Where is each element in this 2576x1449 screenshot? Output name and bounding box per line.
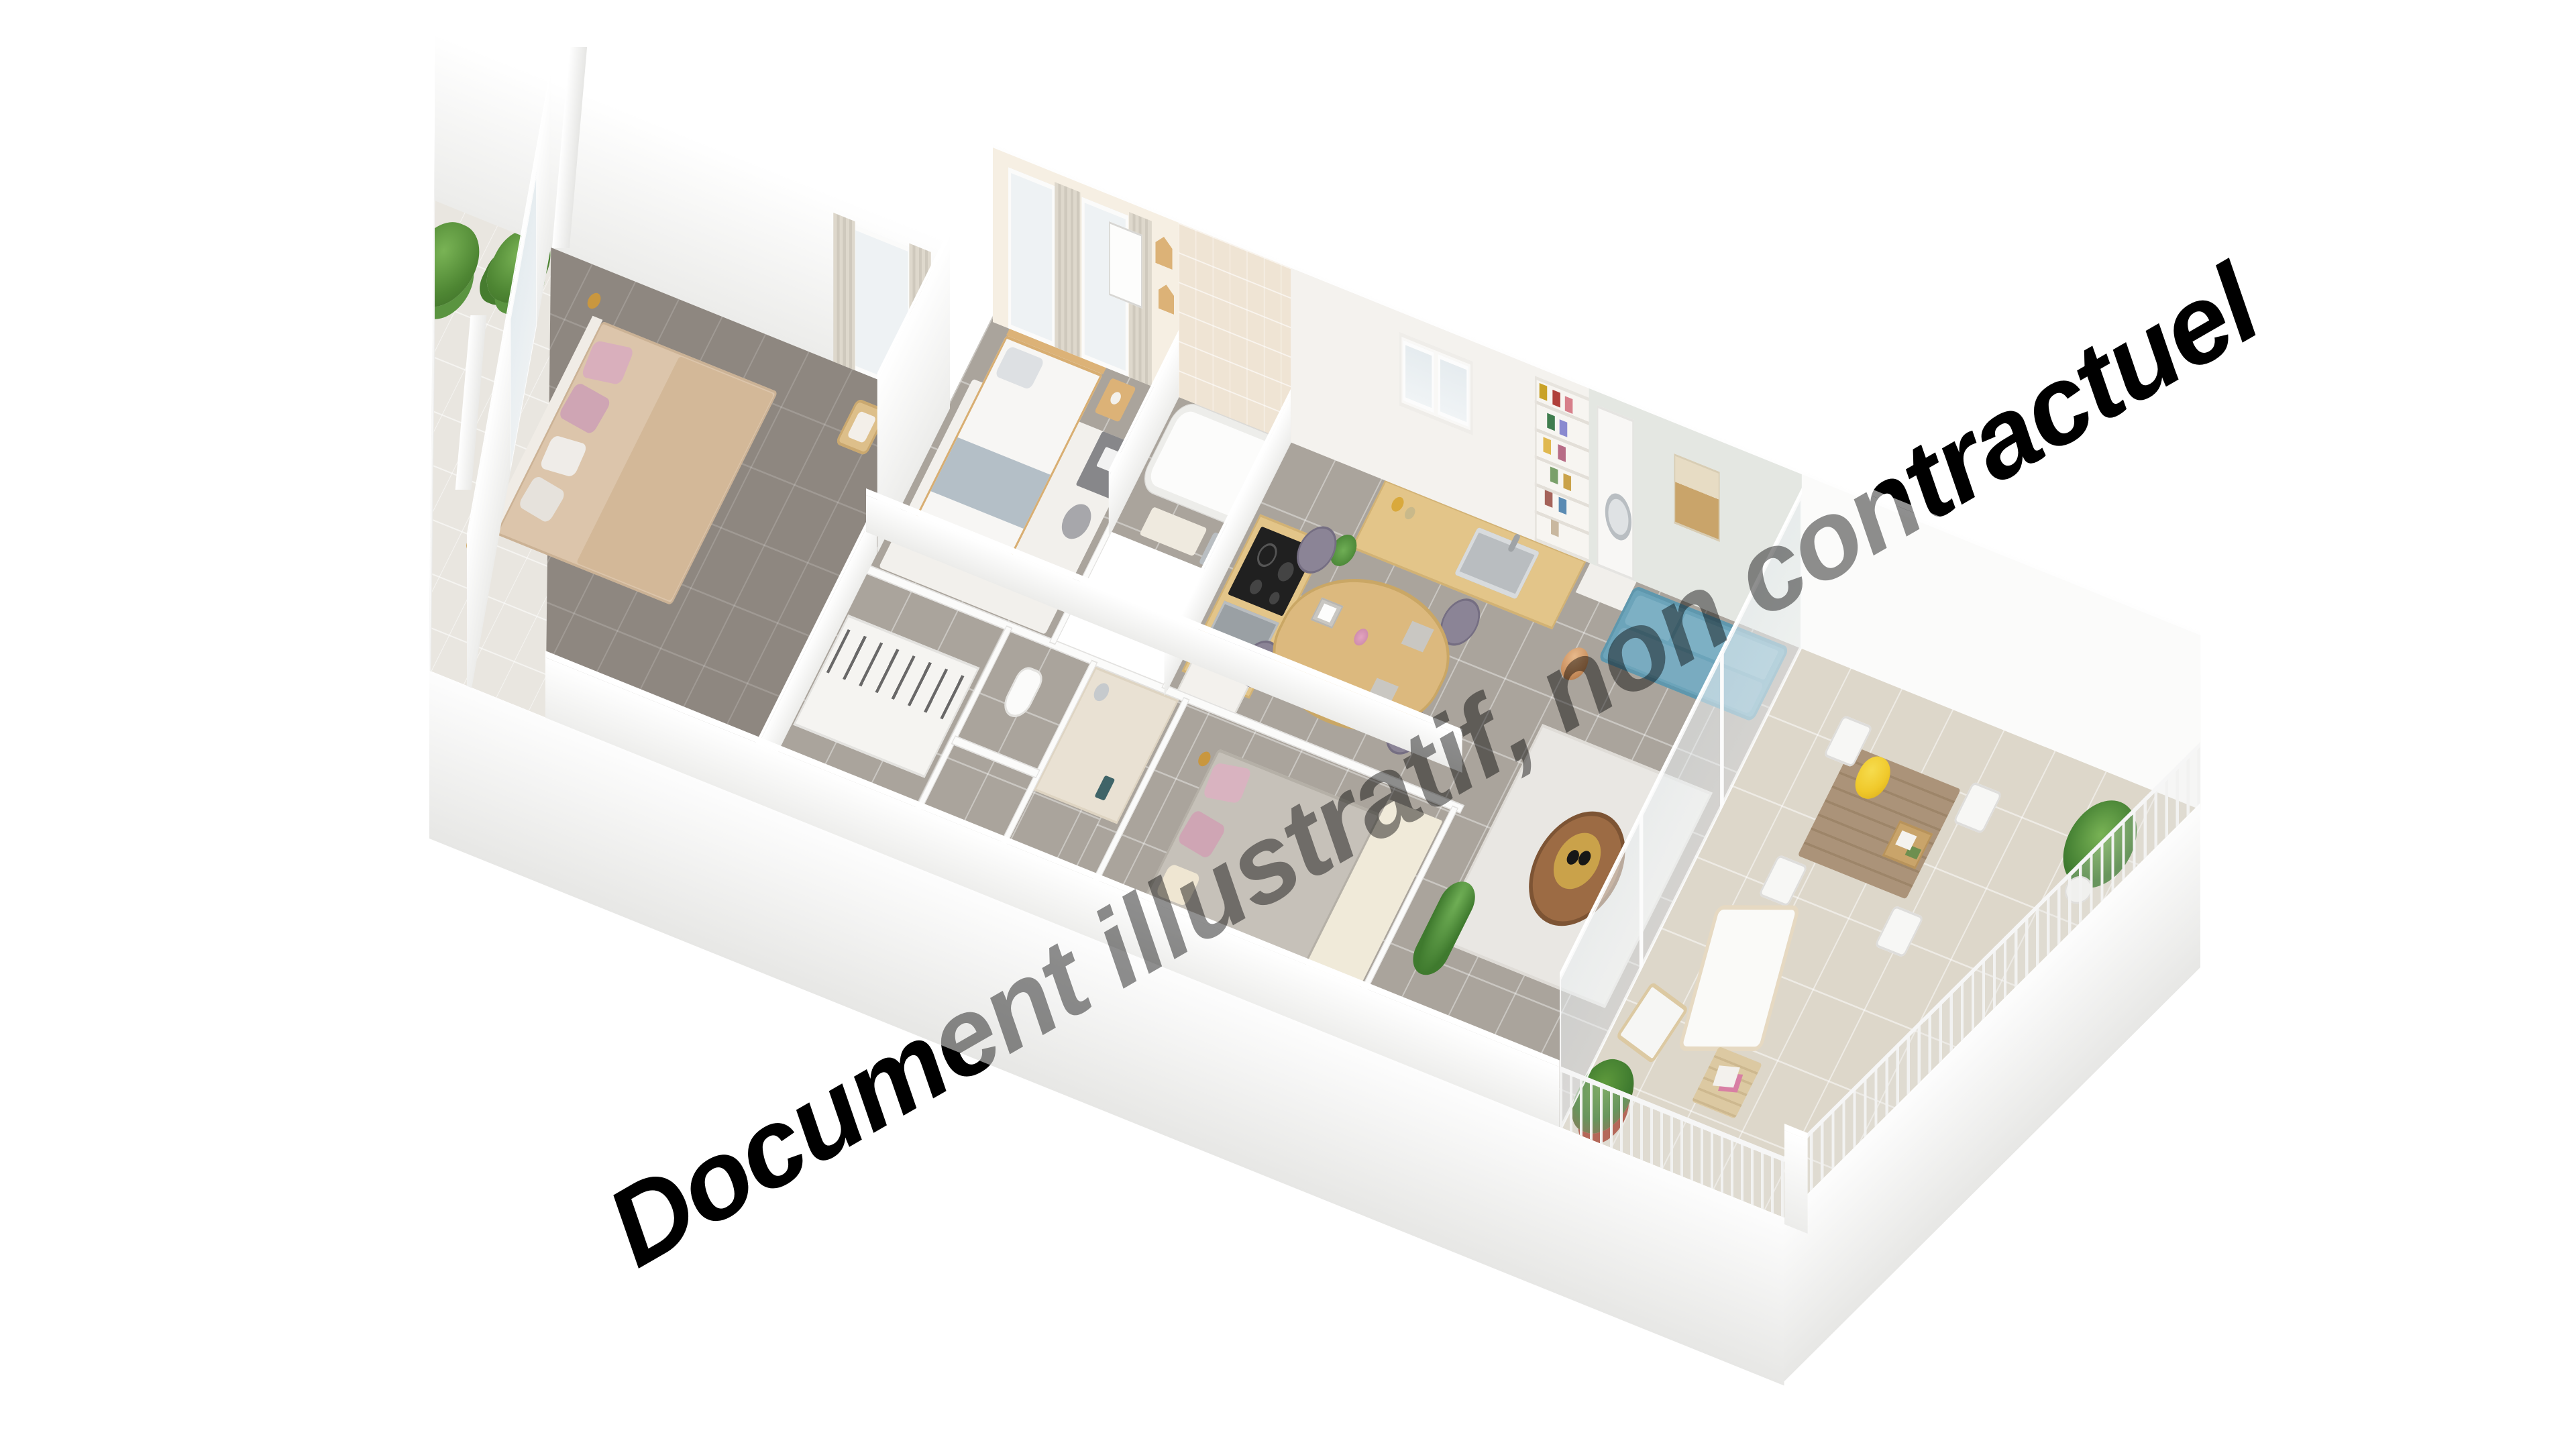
apartment-3d-render — [0, 0, 2576, 1449]
door-mullion — [1640, 812, 1644, 974]
bookshelf — [1535, 376, 1591, 563]
europe-map-poster — [1109, 221, 1142, 309]
bed1-curtain — [833, 213, 855, 370]
door-mullion — [1720, 651, 1724, 812]
terrace-corner-post — [1784, 1124, 1808, 1234]
bed2-curtain — [1055, 182, 1080, 357]
cabinet-glass-pane — [1438, 354, 1469, 427]
cabinet-glass-pane — [1403, 340, 1434, 413]
bookshelf-items-icon — [1540, 383, 1548, 401]
bed2-window — [1008, 167, 1055, 347]
